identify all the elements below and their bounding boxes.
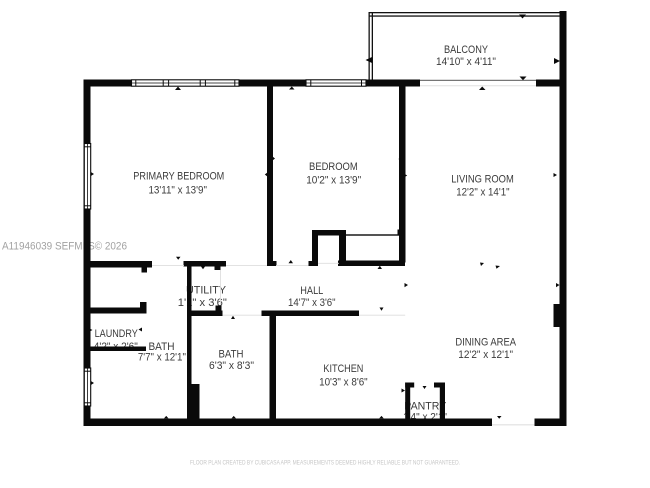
svg-text:A11946039 SEFMLS© 2026: A11946039 SEFMLS© 2026 [2, 240, 127, 252]
svg-text:12'2" x 14'1": 12'2" x 14'1" [456, 186, 509, 198]
svg-text:PRIMARY BEDROOM: PRIMARY BEDROOM [133, 171, 224, 183]
svg-text:KITCHEN: KITCHEN [323, 363, 363, 375]
svg-text:7'7" x 12'1": 7'7" x 12'1" [138, 352, 186, 364]
svg-text:10'3" x 8'6": 10'3" x 8'6" [319, 377, 368, 389]
svg-text:13'11" x 13'9": 13'11" x 13'9" [148, 184, 207, 196]
svg-text:14'10" x 4'11": 14'10" x 4'11" [436, 56, 496, 68]
svg-text:14'7" x 3'6": 14'7" x 3'6" [288, 297, 336, 309]
svg-text:10'2" x 13'9": 10'2" x 13'9" [306, 174, 361, 186]
svg-text:BALCONY: BALCONY [444, 44, 489, 56]
svg-text:DINING AREA: DINING AREA [455, 336, 516, 348]
svg-text:FLOOR PLAN CREATED BY CUBICASA: FLOOR PLAN CREATED BY CUBICASA APP. MEAS… [190, 461, 460, 467]
svg-text:12'2" x 12'1": 12'2" x 12'1" [458, 349, 513, 361]
svg-text:6'3" x 8'3": 6'3" x 8'3" [209, 360, 254, 372]
svg-text:HALL: HALL [300, 285, 323, 297]
svg-text:LIVING ROOM: LIVING ROOM [451, 174, 514, 186]
svg-text:LAUNDRY: LAUNDRY [95, 328, 139, 340]
svg-text:BEDROOM: BEDROOM [309, 161, 358, 173]
svg-text:BATH: BATH [219, 348, 244, 360]
